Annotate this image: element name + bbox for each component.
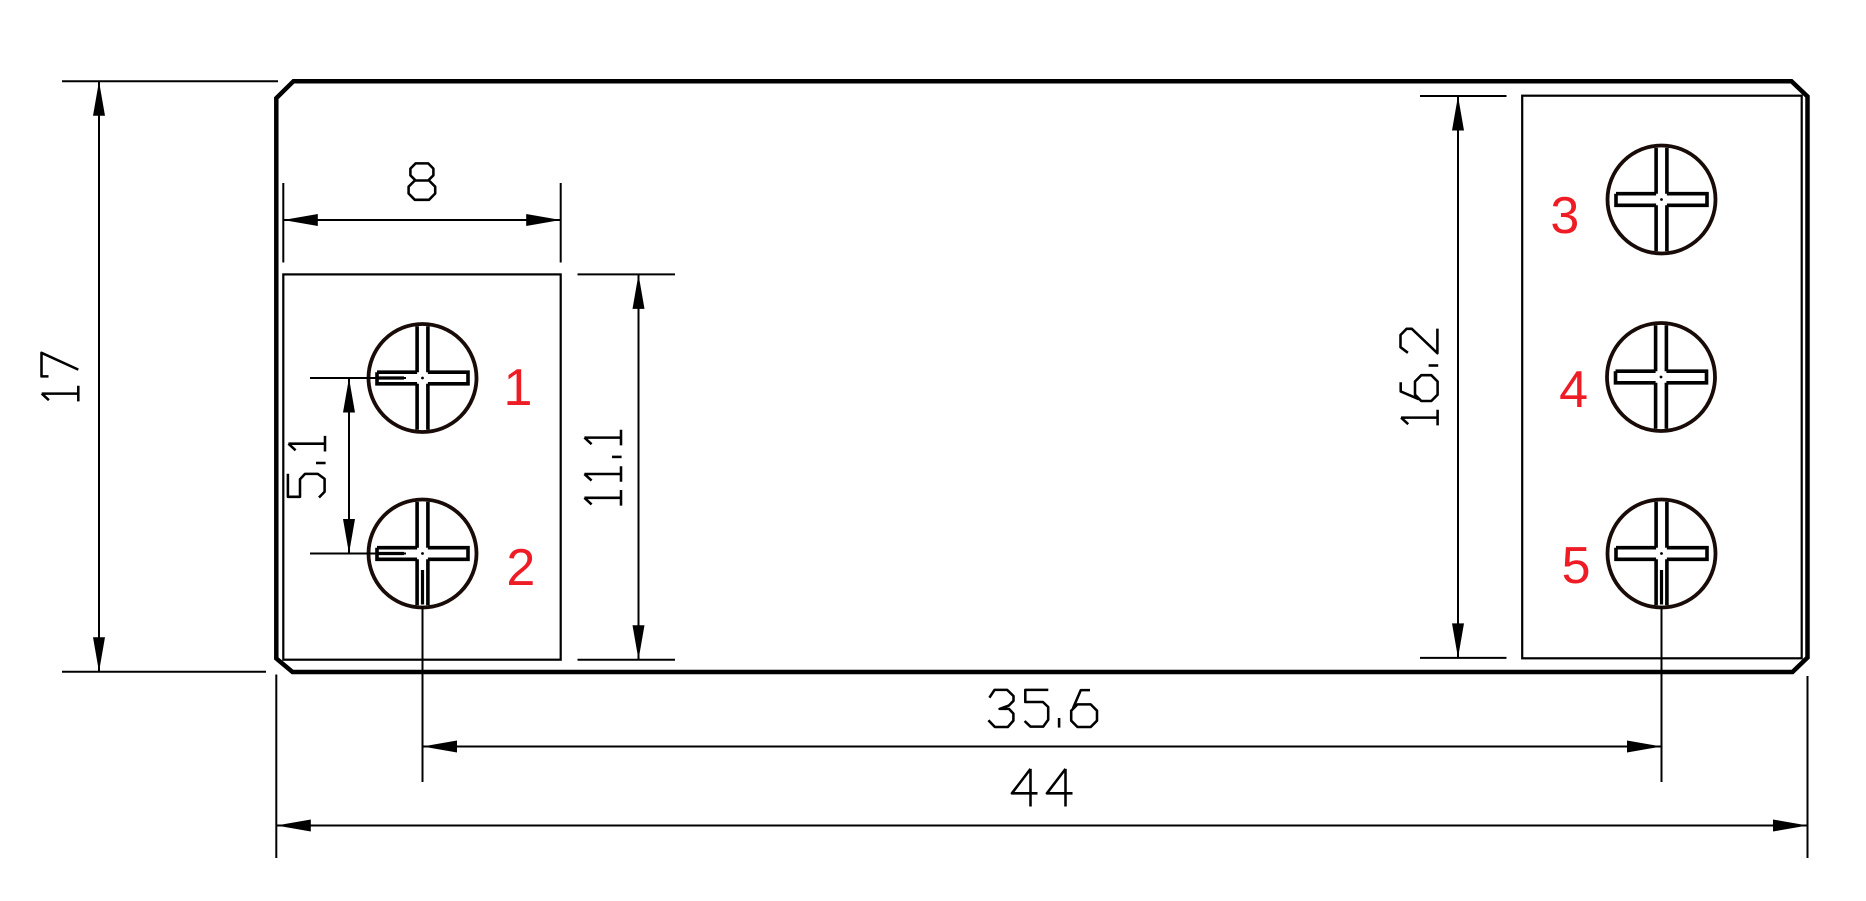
svg-text:5: 5: [1562, 537, 1591, 595]
svg-text:1: 1: [504, 359, 533, 417]
svg-text:3: 3: [1550, 187, 1579, 245]
svg-text:4: 4: [1559, 361, 1588, 419]
svg-text:2: 2: [506, 539, 535, 597]
